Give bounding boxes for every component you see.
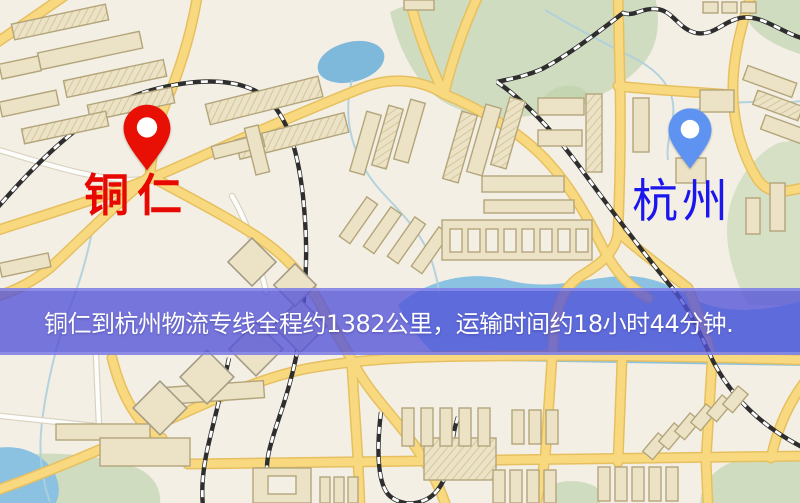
destination-label: 杭州 [632, 178, 732, 224]
origin-pin-icon [122, 103, 172, 172]
route-banner-text: 铜仁到杭州物流专线全程约1382公里，运输时间约18小时44分钟. [44, 304, 733, 339]
destination-pin-icon [667, 107, 713, 170]
destination-pin-hole [681, 120, 700, 139]
origin-marker[interactable] [122, 103, 172, 172]
map-background [0, 0, 800, 503]
route-banner: 铜仁到杭州物流专线全程约1382公里，运输时间约18小时44分钟. [0, 288, 800, 355]
map-container: 铜仁 杭州 铜仁到杭州物流专线全程约1382公里，运输时间约18小时44分钟. [0, 0, 800, 503]
origin-pin-hole [137, 117, 157, 137]
destination-marker[interactable] [667, 107, 713, 170]
origin-label: 铜仁 [84, 173, 190, 218]
